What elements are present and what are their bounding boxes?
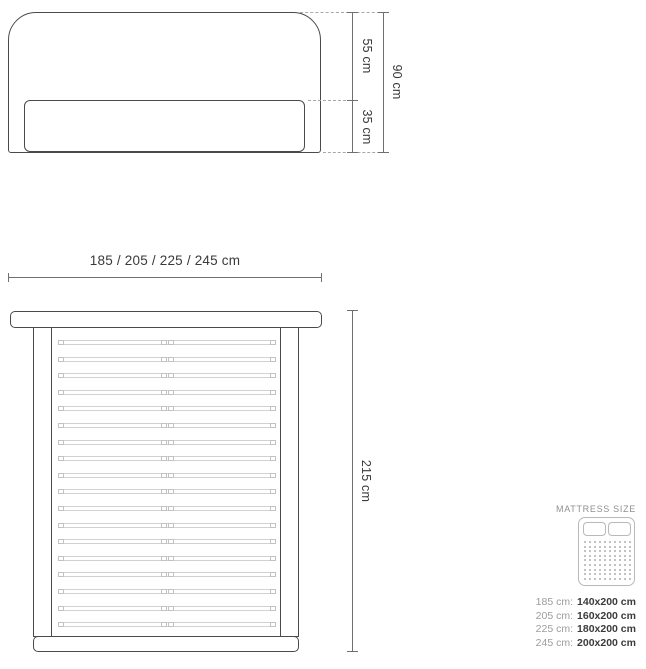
slat-row	[58, 390, 274, 395]
slat-end-cap	[270, 423, 276, 428]
tufting-dot	[609, 546, 611, 548]
slat-end-cap	[168, 423, 174, 428]
slat-end-cap	[168, 406, 174, 411]
legend-title: MATTRESS SIZE	[556, 504, 636, 514]
slat-end-cap	[161, 340, 167, 345]
length-dimension-line	[352, 310, 353, 652]
tufting-dot	[629, 555, 631, 557]
slat-end-cap	[270, 440, 276, 445]
tufting-dot	[614, 564, 616, 566]
mattress-size-value: 140x200 cm	[577, 596, 636, 608]
tufting-dot	[629, 569, 631, 571]
tufting-dot	[614, 573, 616, 575]
slat-end-cap	[58, 456, 64, 461]
size-row: 225 cm:180x200 cm	[536, 623, 636, 637]
tufting-dot	[604, 550, 606, 552]
dimension-line-55-35	[352, 12, 353, 153]
tufting-dot	[594, 564, 596, 566]
tufting-dot	[589, 559, 591, 561]
bed-technical-drawing: 55 cm 35 cm 90 cm 185 / 205 / 225 / 245 …	[0, 0, 646, 669]
tufting-dot	[624, 550, 626, 552]
tufting-dot	[594, 555, 596, 557]
tufting-dot	[594, 559, 596, 561]
dim-label-215cm: 215 cm	[359, 460, 373, 502]
slat-end-cap	[168, 589, 174, 594]
tufting-dot	[604, 559, 606, 561]
slat-end-cap	[168, 440, 174, 445]
slat-end-cap	[168, 373, 174, 378]
tufting-dot	[624, 573, 626, 575]
tufting-dot	[584, 573, 586, 575]
slat-row	[58, 506, 274, 511]
tufting-dot	[609, 564, 611, 566]
tufting-dot	[624, 559, 626, 561]
tufting-dot	[584, 550, 586, 552]
size-row: 245 cm:200x200 cm	[536, 637, 636, 651]
slat-end-cap	[270, 523, 276, 528]
tufting-dot	[609, 550, 611, 552]
bed-base-front-outline	[24, 100, 305, 152]
tufting-dot	[594, 550, 596, 552]
tufting-dot	[624, 578, 626, 580]
tufting-dot	[609, 569, 611, 571]
slat-end-cap	[270, 606, 276, 611]
slat-row	[58, 556, 274, 561]
tufting-dot	[599, 559, 601, 561]
slat-end-cap	[168, 489, 174, 494]
tufting-dot	[589, 541, 591, 543]
dim-tick	[347, 651, 358, 652]
slat-row	[58, 622, 274, 627]
tufting-dot	[609, 559, 611, 561]
dim-tick	[378, 12, 389, 13]
slat-end-cap	[168, 340, 174, 345]
tufting-dot	[629, 573, 631, 575]
slat-row	[58, 357, 274, 362]
tufting-dot	[604, 541, 606, 543]
tufting-dot	[604, 546, 606, 548]
tufting-dot	[584, 578, 586, 580]
slat-end-cap	[161, 606, 167, 611]
slat-end-cap	[270, 506, 276, 511]
tufting-dot	[594, 541, 596, 543]
slat-end-cap	[161, 523, 167, 528]
tufting-dot	[584, 541, 586, 543]
dim-tick	[347, 12, 358, 13]
tufting-dot	[619, 555, 621, 557]
headboard-top-outline	[10, 311, 322, 328]
slat-end-cap	[168, 556, 174, 561]
tufting-dot	[619, 546, 621, 548]
slat-end-cap	[168, 622, 174, 627]
slat-end-cap	[58, 423, 64, 428]
slat-end-cap	[168, 357, 174, 362]
pillow-icon	[583, 522, 606, 536]
size-row: 205 cm:160x200 cm	[536, 610, 636, 624]
slat-end-cap	[58, 572, 64, 577]
slat-end-cap	[270, 373, 276, 378]
slat-row	[58, 440, 274, 445]
slat-end-cap	[270, 390, 276, 395]
tufting-dot	[599, 546, 601, 548]
tufting-dot	[629, 541, 631, 543]
extension-line-top	[300, 12, 385, 13]
tufting-dot	[624, 541, 626, 543]
tufting-dot	[624, 564, 626, 566]
dim-tick	[321, 273, 322, 282]
slat-end-cap	[270, 340, 276, 345]
slat-end-cap	[58, 523, 64, 528]
frame-size-label: 185 cm:	[536, 596, 573, 608]
slat-end-cap	[270, 406, 276, 411]
slat-end-cap	[168, 506, 174, 511]
tufting-dot	[589, 555, 591, 557]
tufting-dot	[614, 569, 616, 571]
tufting-dot	[629, 559, 631, 561]
tufting-dot	[624, 569, 626, 571]
slat-row	[58, 523, 274, 528]
dim-tick	[8, 273, 9, 282]
tufting-dot	[599, 550, 601, 552]
tufting-dot	[604, 573, 606, 575]
slat-end-cap	[58, 473, 64, 478]
slat-end-cap	[168, 572, 174, 577]
slat-end-cap	[270, 572, 276, 577]
mattress-size-list: 185 cm:140x200 cm 205 cm:160x200 cm 225 …	[536, 596, 636, 650]
slat-row	[58, 489, 274, 494]
slat-end-cap	[161, 373, 167, 378]
slat-end-cap	[168, 456, 174, 461]
slat-end-cap	[58, 606, 64, 611]
dim-label-35cm: 35 cm	[360, 109, 374, 144]
tufting-dot	[589, 546, 591, 548]
tufting-dot	[609, 555, 611, 557]
tufting-dot	[604, 564, 606, 566]
slat-end-cap	[58, 556, 64, 561]
tufting-dot	[604, 578, 606, 580]
tufting-dot	[619, 541, 621, 543]
slat-end-cap	[161, 622, 167, 627]
tufting-dot	[619, 559, 621, 561]
slat-end-cap	[58, 622, 64, 627]
slat-end-cap	[168, 539, 174, 544]
frame-size-label: 245 cm:	[536, 637, 573, 649]
slat-row	[58, 456, 274, 461]
slat-end-cap	[270, 473, 276, 478]
tufting-dot	[584, 569, 586, 571]
tufting-dot	[599, 555, 601, 557]
side-rail-right	[280, 327, 299, 637]
tufting-dot	[614, 555, 616, 557]
tufting-dot	[619, 573, 621, 575]
slat-end-cap	[161, 440, 167, 445]
tufting-dot	[629, 578, 631, 580]
tufting-dot	[624, 546, 626, 548]
slat-end-cap	[58, 489, 64, 494]
tufting-dot	[604, 569, 606, 571]
slat-end-cap	[161, 473, 167, 478]
size-row: 185 cm:140x200 cm	[536, 596, 636, 610]
slat-end-cap	[168, 390, 174, 395]
mattress-size-value: 180x200 cm	[577, 623, 636, 635]
slat-end-cap	[58, 539, 64, 544]
tufting-dot	[599, 569, 601, 571]
tufting-dot	[599, 541, 601, 543]
slat-end-cap	[58, 390, 64, 395]
frame-size-label: 205 cm:	[536, 610, 573, 622]
mattress-size-value: 160x200 cm	[577, 610, 636, 622]
slat-row	[58, 539, 274, 544]
tufting-dot	[619, 550, 621, 552]
dim-tick	[347, 100, 358, 101]
tufting-dot	[614, 541, 616, 543]
tufting-dot	[614, 578, 616, 580]
slat-end-cap	[58, 340, 64, 345]
tufting-dot	[619, 578, 621, 580]
frame-size-label: 225 cm:	[536, 623, 573, 635]
tufting-dot	[589, 573, 591, 575]
tufting-dot	[624, 555, 626, 557]
footboard-outline	[33, 636, 299, 652]
tufting-dot	[609, 578, 611, 580]
tufting-dot	[599, 573, 601, 575]
slat-end-cap	[270, 357, 276, 362]
side-rail-left	[33, 327, 52, 637]
mattress-icon	[578, 517, 635, 586]
tufting-dot	[619, 569, 621, 571]
slat-end-cap	[270, 539, 276, 544]
tufting-dot	[589, 569, 591, 571]
slat-end-cap	[161, 506, 167, 511]
dim-label-width-options: 185 / 205 / 225 / 245 cm	[90, 253, 240, 268]
slat-end-cap	[270, 589, 276, 594]
slat-row	[58, 606, 274, 611]
tufting-dot	[614, 550, 616, 552]
dim-tick	[347, 152, 358, 153]
tufting-dot	[629, 550, 631, 552]
tufting-dot	[629, 546, 631, 548]
dim-tick	[378, 152, 389, 153]
slat-end-cap	[161, 556, 167, 561]
slat-end-cap	[58, 406, 64, 411]
slat-end-cap	[161, 539, 167, 544]
tufting-dot	[589, 578, 591, 580]
tufting-dot	[609, 573, 611, 575]
slat-end-cap	[58, 357, 64, 362]
tufting-dot	[594, 573, 596, 575]
tufting-dot	[599, 578, 601, 580]
tufting-dot	[584, 555, 586, 557]
slat-end-cap	[161, 456, 167, 461]
slat-end-cap	[168, 523, 174, 528]
slat-row	[58, 340, 274, 345]
tufting-dot	[589, 550, 591, 552]
slat-end-cap	[58, 589, 64, 594]
slat-end-cap	[161, 572, 167, 577]
slat-end-cap	[270, 622, 276, 627]
tufting-dot	[629, 564, 631, 566]
tufting-dot	[594, 578, 596, 580]
tufting-dot	[619, 564, 621, 566]
slat-end-cap	[168, 606, 174, 611]
slat-end-cap	[161, 357, 167, 362]
slat-row	[58, 373, 274, 378]
slat-end-cap	[161, 589, 167, 594]
tufting-dot	[604, 555, 606, 557]
slat-end-cap	[58, 373, 64, 378]
slat-end-cap	[161, 406, 167, 411]
tufting-dot	[609, 541, 611, 543]
slat-end-cap	[58, 440, 64, 445]
tufting-dot	[589, 564, 591, 566]
tufting-dot	[594, 546, 596, 548]
slat-end-cap	[168, 473, 174, 478]
tufting-dot	[614, 559, 616, 561]
slat-row	[58, 572, 274, 577]
slat-row	[58, 423, 274, 428]
tufting-dot	[584, 564, 586, 566]
tufting-dot	[584, 546, 586, 548]
slat-end-cap	[270, 556, 276, 561]
slat-end-cap	[161, 423, 167, 428]
slat-row	[58, 406, 274, 411]
slat-end-cap	[270, 456, 276, 461]
dim-label-55cm: 55 cm	[360, 38, 374, 73]
slat-end-cap	[161, 489, 167, 494]
tufting-dot	[599, 564, 601, 566]
slat-end-cap	[58, 506, 64, 511]
tufting-dot	[584, 559, 586, 561]
slat-end-cap	[270, 489, 276, 494]
pillow-icon	[608, 522, 631, 536]
mattress-size-value: 200x200 cm	[577, 637, 636, 649]
slat-end-cap	[161, 390, 167, 395]
slat-row	[58, 473, 274, 478]
tufting-dot	[614, 546, 616, 548]
dimension-line-90	[383, 12, 384, 153]
slat-row	[58, 589, 274, 594]
width-dimension-line	[8, 277, 322, 278]
tufting-dot	[594, 569, 596, 571]
dim-label-90cm: 90 cm	[390, 64, 404, 99]
dim-tick	[347, 310, 358, 311]
